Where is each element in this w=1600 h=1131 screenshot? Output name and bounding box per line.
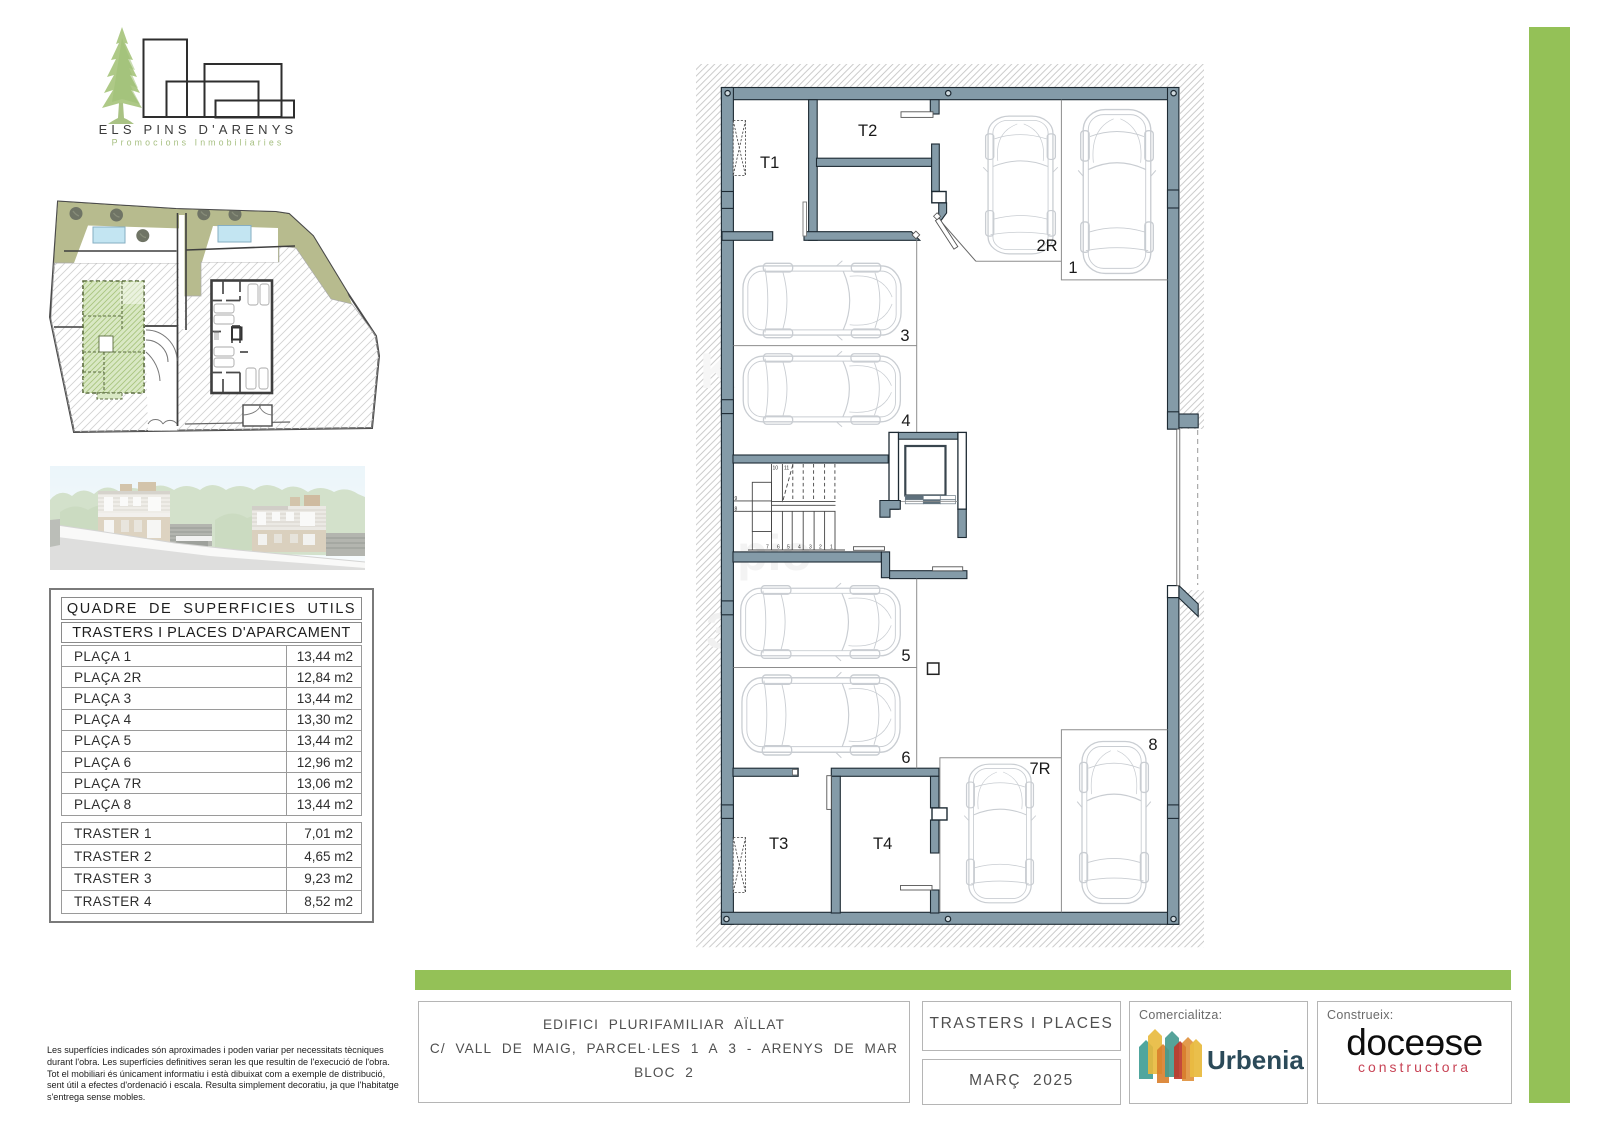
svg-text:Urbenia: Urbenia: [1207, 1045, 1304, 1075]
svg-text:8: 8: [1148, 736, 1157, 754]
svg-text:1: 1: [830, 545, 833, 551]
svg-text:7R: 7R: [1029, 760, 1050, 778]
svg-text:4: 4: [901, 412, 910, 430]
svg-text:7: 7: [766, 545, 769, 551]
svg-text:11: 11: [784, 466, 789, 472]
svg-text:8: 8: [735, 507, 738, 513]
svg-text:T3: T3: [769, 835, 788, 853]
svg-text:6: 6: [777, 545, 780, 551]
svg-text:2: 2: [819, 545, 822, 551]
svg-text:Promocions Inmobiliaries: Promocions Inmobiliaries: [112, 138, 285, 148]
svg-text:2R: 2R: [1036, 237, 1057, 255]
svg-text:5: 5: [901, 647, 910, 665]
svg-text:T4: T4: [873, 835, 892, 853]
svg-text:1: 1: [1068, 259, 1077, 277]
svg-text:3: 3: [809, 545, 812, 551]
svg-text:9: 9: [735, 496, 738, 502]
svg-text:4: 4: [798, 545, 801, 551]
svg-text:3: 3: [900, 327, 909, 345]
svg-text:10: 10: [773, 466, 779, 472]
svg-text:T1: T1: [760, 154, 779, 172]
svg-text:ELS PINS D'ARENYS: ELS PINS D'ARENYS: [99, 122, 298, 137]
svg-text:6: 6: [901, 749, 910, 767]
svg-text:5: 5: [787, 545, 790, 551]
svg-text:T2: T2: [858, 122, 877, 140]
